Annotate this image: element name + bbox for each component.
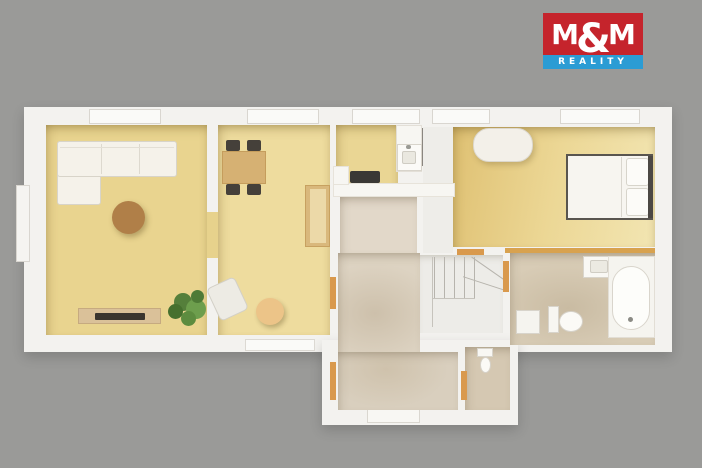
sofa-back-line (60, 147, 174, 148)
stair-landing-edge (432, 257, 433, 327)
cooktop (350, 171, 380, 183)
doorway-living-dining (207, 212, 218, 258)
door-threshold-bedroom (457, 249, 484, 255)
logo-ampersand: & (576, 19, 610, 59)
window-top-bedroom (560, 109, 640, 124)
dining-chair-3 (226, 184, 240, 195)
kitchen-sink-basin (402, 151, 416, 164)
washing-machine (516, 310, 540, 334)
window-left-living (16, 185, 30, 262)
kitchen-faucet (406, 145, 411, 149)
sofa-cushion-line-1 (101, 144, 102, 174)
kitchen-counter-l (333, 166, 349, 185)
headboard (648, 156, 653, 218)
window-top-living (89, 109, 161, 124)
logo-m2: M (608, 18, 635, 51)
bathroom-wall-strip (505, 248, 655, 253)
dining-chair-4 (247, 184, 261, 195)
window-top-kitchen (352, 109, 420, 124)
sofa-cushion-line-2 (139, 144, 140, 174)
hall-lower-floor (338, 352, 458, 410)
hall-main-floor (338, 253, 420, 363)
logo-mm-box: M&M (543, 13, 643, 55)
bath-toilet-tank (548, 306, 559, 333)
bath-toilet-bowl (559, 311, 583, 332)
door-threshold-hall (330, 277, 336, 309)
dining-chair-2 (247, 140, 261, 151)
hall-upper-floor (340, 197, 417, 253)
bath-sink-basin (590, 260, 608, 273)
coffee-table (112, 201, 145, 234)
dining-cabinet-front (310, 189, 326, 243)
plant-leaf-4 (181, 311, 196, 326)
entry-door (367, 409, 420, 423)
plant-leaf-5 (191, 290, 204, 303)
wc-toilet-tank (477, 348, 493, 357)
door-threshold-entry-side (330, 362, 336, 400)
bathtub-drain (628, 317, 633, 322)
floorplan-canvas: M&M REALITY (0, 0, 702, 468)
bedroom-bench (473, 128, 533, 162)
window-top-corridor (432, 109, 490, 124)
door-threshold-wc (461, 371, 467, 400)
bed-pillow-2 (626, 188, 649, 216)
stair-riser-2 (444, 257, 445, 299)
kitchen-counter (333, 183, 455, 197)
logo-m1: M (551, 18, 578, 51)
bed-pillow-1 (626, 158, 649, 186)
stair-riser-1 (434, 257, 435, 299)
stair-bottom-edge (433, 298, 475, 299)
pouf (256, 298, 284, 325)
dining-table (222, 151, 266, 184)
window-bottom-dining (245, 339, 315, 351)
stair-riser-5 (474, 257, 475, 299)
bed-fold-line (621, 157, 622, 217)
tv (95, 313, 145, 320)
dining-chair-1 (226, 140, 240, 151)
stair-riser-3 (454, 257, 455, 299)
door-threshold-bathroom (503, 261, 509, 292)
wc-toilet-bowl (480, 357, 491, 373)
window-top-dining (247, 109, 319, 124)
mm-reality-logo: M&M REALITY (543, 13, 643, 69)
